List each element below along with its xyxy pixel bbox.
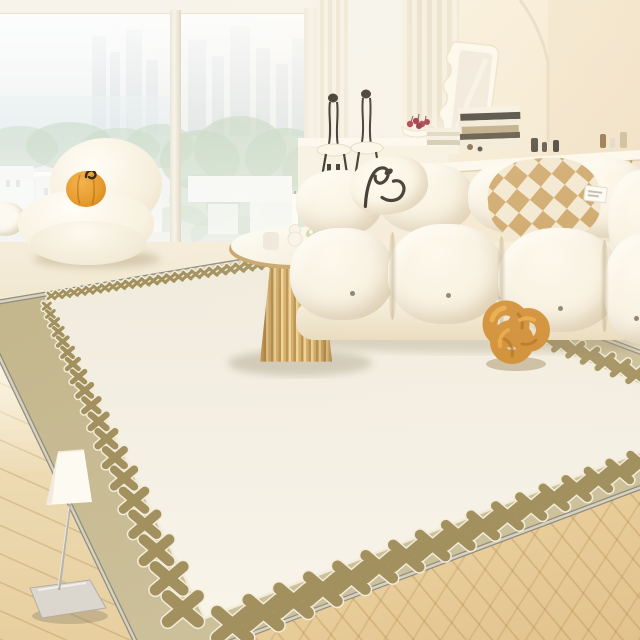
coffee-table-foot [258,354,334,370]
tuft-button [634,316,639,321]
tuft-button [446,293,451,298]
pumpkin-pillow [66,171,106,207]
sofa-seam [388,232,397,320]
knot-pillow [478,290,560,374]
armchair-front [30,221,146,265]
frosted-cup [263,232,279,250]
tuft-button [350,291,355,296]
lamp-stem [59,504,70,590]
sofa-seat-cushion [290,228,394,320]
pumpkin-stem [86,171,95,178]
floor-lamp [28,448,138,633]
living-room-photo [0,0,640,640]
sofa-label-tag [583,185,608,204]
sofa-seam [600,240,609,332]
